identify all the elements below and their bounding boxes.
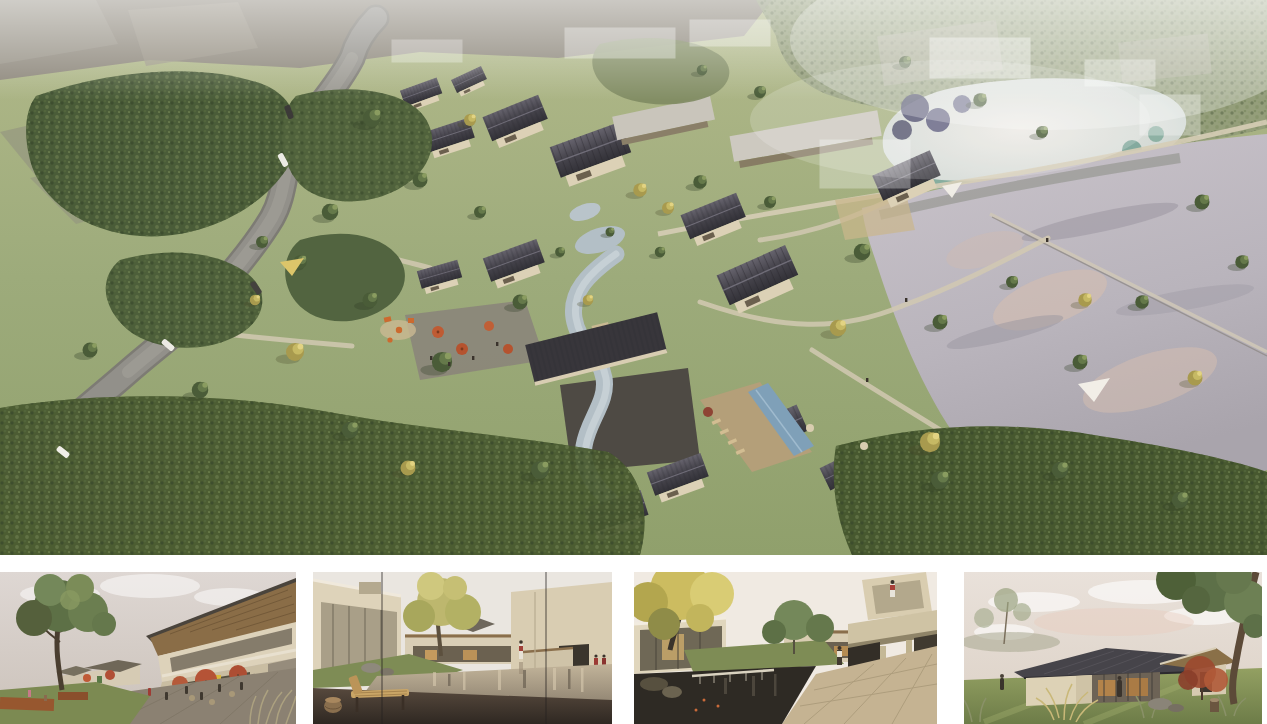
rendering-collage: [0, 0, 1267, 724]
aerial-masterplan-rendering: [0, 0, 1267, 555]
carved-stool: [324, 697, 342, 713]
court-person: [837, 646, 842, 665]
courtyard-pond-canvas: [313, 572, 612, 724]
shop-sign-green: [97, 676, 102, 683]
lawn-person: [1000, 674, 1004, 690]
street-view-canvas: [0, 572, 296, 724]
pavilion-person: [1117, 680, 1122, 697]
aerial-rendering-canvas: [0, 0, 1267, 555]
thumbnail-street-cafe-view: [0, 572, 296, 724]
thumbnail-water-court-view: [634, 572, 937, 724]
thumbnail-courtyard-pond-view: [313, 572, 612, 724]
pool-umbrella: [703, 407, 713, 417]
thumbnail-lawn-pavilion-view: [964, 572, 1262, 724]
lawn-pavilion-canvas: [964, 572, 1262, 724]
water-court-canvas: [634, 572, 937, 724]
